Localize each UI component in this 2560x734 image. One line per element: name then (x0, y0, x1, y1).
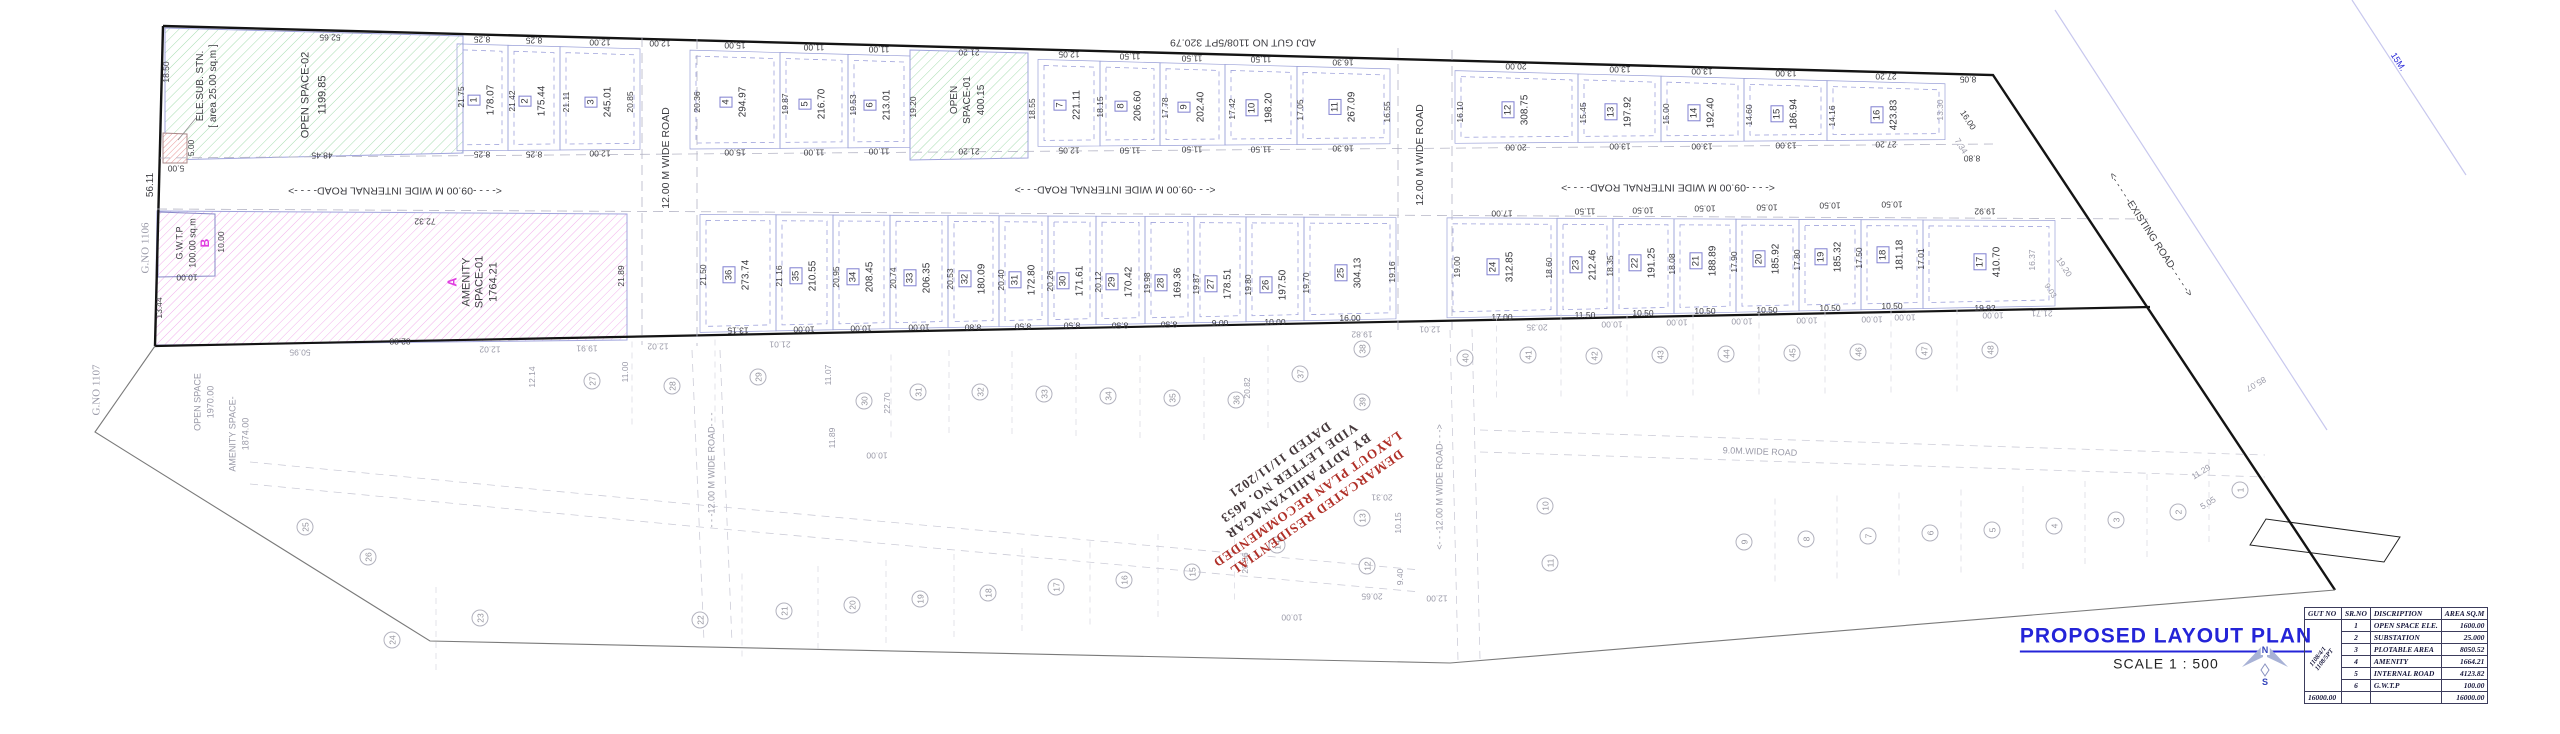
dim-label: 10.50 (1694, 204, 1715, 213)
dim-label: 20.40 (997, 269, 1006, 290)
table-header: AREA SQ.M (2441, 608, 2488, 620)
plot-area: 171.61 (1075, 266, 1086, 297)
dim-label: 13.00 (1609, 65, 1630, 74)
plot-number: 15 (1770, 106, 1783, 123)
dim-label: 10.50 (1632, 309, 1653, 318)
table-cell-sr_no: 2 (2342, 632, 2371, 644)
dim-label: 27.20 (1875, 72, 1896, 81)
plot-number: 1 (467, 94, 480, 105)
table-cell-area: 8050.52 (2441, 644, 2488, 656)
plot-cell (776, 215, 833, 331)
dim-label: 19.53 (849, 94, 858, 115)
plot-marker: 16 (1116, 572, 1133, 589)
dim-label: 13.00 (1775, 69, 1796, 78)
plot-number: 22 (1628, 255, 1641, 272)
dim-label: 11.50 (1575, 207, 1596, 216)
plot-cell (700, 214, 776, 332)
dim-label: 21.20 (958, 48, 979, 57)
road-label: <- - -12.00 M WIDE ROAD- - -> (1436, 424, 1445, 550)
dim-label: 21.75 (457, 86, 466, 107)
table-total-row: 16000.0016000.00 (2305, 692, 2488, 704)
plot-marker: 32 (972, 384, 989, 401)
plot-area: 172.80 (1026, 265, 1037, 296)
plot-marker: 26 (360, 549, 377, 566)
plot-number: 21 (1690, 253, 1703, 270)
dim-label: 11.00 (804, 148, 825, 157)
plot-cell-inner (1805, 225, 1855, 305)
dim-label: 72.32 (414, 217, 435, 226)
plot-marker: 37 (1292, 366, 1309, 383)
dim-label: 13.15 (727, 326, 748, 335)
boundary-line (1480, 452, 2265, 477)
plot-area: 175.44 (537, 86, 548, 117)
zone-label: AMENITY SPACE- (229, 396, 238, 471)
plot-number: 12 (1501, 102, 1514, 119)
plot-number: 36 (723, 267, 736, 284)
plot-marker: 42 (1586, 348, 1603, 365)
table-empty-cell (2370, 692, 2441, 704)
plot-area: 267.09 (1346, 92, 1357, 123)
table-cell-area: 25.000 (2441, 632, 2488, 644)
plot-area: 221.11 (1072, 90, 1083, 120)
table-cell-sr_no: 5 (2342, 668, 2371, 680)
dim-label: 10.00 (850, 324, 871, 333)
plot-number: 11 (1328, 99, 1341, 115)
dim-label: 20.82 (1243, 377, 1252, 398)
dim-label: 8.50 (1112, 321, 1129, 330)
table-header: SR.NO (2342, 608, 2371, 620)
plot-area: 210.55 (807, 261, 818, 292)
plot-cell-inner (1200, 223, 1240, 317)
plot-area: 245.01 (603, 87, 614, 118)
dim-label: 10.00 (1894, 313, 1915, 322)
plot-cell (1297, 66, 1390, 144)
dim-label: 20.53 (946, 268, 955, 289)
plot-area: 169.36 (1172, 268, 1183, 299)
plot-marker: 29 (750, 369, 767, 386)
plot-marker: 27 (584, 373, 601, 390)
dim-label: 11.00 (621, 362, 630, 383)
plot-number: 28 (1154, 275, 1167, 292)
plot-marker: 24 (384, 632, 401, 649)
plot-area: 192.40 (1705, 98, 1716, 129)
area-summary-table: GUT NOSR.NODISCRIPTIONAREA SQ.M1108/4/11… (2304, 607, 2488, 704)
table-cell-description: AMENITY (2370, 656, 2441, 668)
plot-cell (1160, 63, 1225, 146)
dim-label: 13.44 (155, 297, 164, 318)
plot-marker: 17 (1048, 579, 1065, 596)
plot-area: 181.18 (1895, 240, 1906, 271)
plot-cell (1145, 216, 1194, 323)
plot-marker: 21 (776, 603, 793, 620)
plot-number: 32 (958, 271, 971, 288)
dim-label: 10.50 (1881, 200, 1902, 209)
dim-label: 10.50 (1632, 206, 1653, 215)
dim-label: 14.16 (1828, 105, 1837, 126)
dim-label: 8.80 (1964, 154, 1981, 163)
dim-label: 10.00 (1281, 613, 1302, 622)
dim-label: 13.00 (1775, 141, 1796, 150)
dim-label: 12.00 (649, 39, 670, 48)
dim-label: 10.00 (217, 231, 226, 252)
boundary-line (2055, 10, 2327, 430)
dim-label: 19.82 (1351, 330, 1372, 339)
plot-cell (780, 53, 848, 149)
zone-label: SPACE-01 (475, 256, 486, 308)
zone-label: G.NO 1107 (92, 365, 103, 416)
dim-label: 20.85 (626, 91, 635, 112)
plot-cell-inner (1584, 80, 1655, 136)
dim-label: 1764.21 (489, 262, 500, 302)
zone-outline (2250, 519, 2400, 562)
dim-label: 52.65 (319, 33, 340, 42)
plot-area: 197.92 (1622, 97, 1633, 128)
dim-label: 16.30 (1332, 58, 1353, 67)
dim-label: 15.00 (724, 41, 745, 50)
dim-label: 11.50 (1251, 145, 1272, 154)
dim-label: 11.07 (824, 365, 833, 386)
dim-label: 400.15 (977, 85, 987, 116)
plot-marker: 47 (1916, 343, 1933, 360)
dim-label: 10.00 (793, 325, 814, 334)
dim-label: 21.16 (775, 265, 784, 286)
dim-label: 17.01 (1917, 248, 1926, 269)
dim-label: 11.00 (869, 147, 890, 156)
dim-label: 20.35 (1526, 323, 1547, 332)
plot-number: 4 (720, 96, 733, 107)
plot-cell (1048, 216, 1096, 326)
dim-label: 12.05 (1058, 146, 1079, 155)
plot-marker: 30 (856, 393, 873, 410)
plot-marker: 25 (297, 519, 314, 536)
plot-number: 19 (1815, 249, 1828, 266)
zone-outline (163, 133, 187, 163)
table-cell-sr_no: 1 (2342, 620, 2371, 632)
dim-label: 18.55 (1028, 98, 1037, 119)
dim-label: 20.26 (1046, 270, 1055, 291)
plot-number: 3 (585, 96, 598, 107)
plot-marker: 34 (1100, 388, 1117, 405)
dim-label: 17.42 (1228, 98, 1237, 119)
plot-number: 29 (1105, 274, 1118, 291)
zone-label: 100.00 sq.m (189, 218, 198, 268)
zone-label: OPEN SPACE (194, 373, 203, 431)
dim-label: 10.50 (1694, 307, 1715, 316)
zone-label: OPEN SPACE-02 (301, 52, 312, 139)
dim-label: 18.50 (162, 61, 171, 82)
plot-cell-inner (1461, 77, 1572, 138)
dim-label: 11.00 (804, 43, 825, 52)
dim-label: 13.00 (1691, 142, 1712, 151)
plot-cell (1304, 217, 1396, 320)
table-cell-area: 1664.21 (2441, 656, 2488, 668)
table-cell-description: INTERNAL ROAD (2370, 668, 2441, 680)
gut-no-value: 1108/4/11108/5PT (2308, 639, 2338, 671)
dim-label: 50.95 (289, 348, 310, 357)
plot-number: 5 (799, 98, 812, 109)
table-header: DISCRIPTION (2370, 608, 2441, 620)
dim-label: 8.50 (1064, 321, 1081, 330)
layout-plan-canvas: ADJ GUT NO 1108/5PT 320.79G.NO 110656.11… (0, 0, 2560, 734)
zone-label: G.NO 1106 (141, 223, 152, 274)
dim-label: 21.01 (769, 340, 790, 349)
dim-label: 11.50 (1251, 55, 1272, 64)
plot-cell (890, 215, 948, 328)
table-header: GUT NO (2305, 608, 2342, 620)
plot-number: 26 (1260, 277, 1273, 294)
dim-label: 16.30 (1332, 144, 1353, 153)
table-cell-sr_no: 4 (2342, 656, 2371, 668)
dim-label: 10.00 (908, 323, 929, 332)
dim-label: 21.42 (508, 90, 517, 111)
dim-label: 18.08 (1668, 253, 1677, 274)
plot-area: 185.32 (1833, 242, 1844, 273)
compass-north-label: N (2261, 645, 2270, 655)
plot-marker: 18 (980, 585, 997, 602)
dim-label: 10.50 (1819, 201, 1840, 210)
plan-scale: SCALE 1 : 500 (2020, 656, 2312, 672)
plot-marker: 15 (1184, 564, 1201, 581)
dim-label: 8.80 (965, 323, 982, 332)
dim-label: 10.00 (1796, 316, 1817, 325)
plot-marker: 40 (1457, 350, 1474, 367)
dim-label: 17.00 (1491, 209, 1512, 218)
dim-label: 21.11 (562, 92, 571, 113)
plot-marker: 19 (912, 591, 929, 608)
dim-label: 15.00 (1662, 103, 1671, 124)
dim-label: 10.15 (1394, 512, 1403, 533)
plot-area: 188.89 (1708, 246, 1719, 277)
zone-label: AMENITY (462, 258, 473, 307)
dim-label: 21.50 (699, 264, 708, 285)
plot-cell-inner (706, 220, 770, 326)
plot-area: 304.13 (1353, 258, 1364, 289)
dim-label: 5.00 (187, 140, 196, 157)
plot-marker: 28 (664, 378, 681, 395)
plot-cell (1674, 219, 1736, 314)
plot-area: 178.51 (1223, 269, 1234, 300)
zone-label: A (446, 277, 459, 286)
dim-label: 19.98 (1143, 272, 1152, 293)
dim-label: 19.16 (1388, 261, 1397, 282)
dim-label: 8.25 (526, 36, 543, 45)
plot-cell (1736, 219, 1799, 312)
zone-label: ELE.SUB. STN. (196, 51, 206, 122)
dim-label: 17.00 (1491, 313, 1512, 322)
plot-cell (1661, 76, 1744, 142)
plot-marker: 38 (1354, 341, 1371, 358)
plot-area: 312.85 (1505, 252, 1516, 283)
dim-label: 12.01 (1419, 325, 1440, 334)
dim-label: 10.00 (1666, 318, 1687, 327)
plot-cell-inner (1252, 223, 1298, 316)
plot-number: 6 (864, 99, 877, 110)
dim-label: 10.50 (1819, 304, 1840, 313)
boundary-line (1472, 329, 1480, 659)
plot-number: 27 (1205, 276, 1218, 293)
dim-label: 16.00 (1339, 314, 1360, 323)
plot-marker: 6 (1922, 525, 1939, 542)
dim-label: 18.35 (1606, 255, 1615, 276)
plot-cell (1861, 220, 1923, 310)
dim-label: 10.50 (1756, 306, 1777, 315)
dim-label: 17.80 (1793, 249, 1802, 270)
plot-marker: 45 (1784, 345, 1801, 362)
plot-number: 31 (1008, 272, 1021, 289)
plot-marker: 9 (1736, 534, 1753, 551)
dim-label: 20.65 (1361, 592, 1382, 601)
dim-label: 20.00 (1505, 143, 1526, 152)
dim-label: 56.11 (146, 173, 156, 197)
dim-label: 8.25 (474, 35, 491, 44)
dim-label: 22.70 (883, 392, 892, 413)
plot-marker: 43 (1652, 347, 1669, 364)
plot-cell-inner (1619, 225, 1668, 309)
dim-label: 10.50 (1756, 203, 1777, 212)
dim-label: 21.71 (2031, 309, 2052, 318)
plot-cell (1096, 216, 1145, 324)
dim-label: 1970.00 (207, 386, 216, 419)
dim-label: 8.05 (1960, 75, 1977, 84)
road-label: <- - - -09.00 M WIDE INTERNAL ROAD- - - … (288, 185, 502, 196)
plot-area: 308.75 (1519, 95, 1530, 126)
table-cell-description: OPEN SPACE ELE. (2370, 620, 2441, 632)
plot-number: 9 (1177, 101, 1190, 112)
dim-label: 10.00 (1982, 311, 2003, 320)
dim-label: 1874.00 (242, 418, 251, 451)
dim-label: 12.00 (589, 38, 610, 47)
boundary-line (2352, 0, 2466, 175)
road-label: 12.00 M WIDE ROAD (661, 107, 672, 209)
plot-number: 16 (1871, 107, 1884, 124)
zone-label: [ area 25.00 sq.m ] (209, 44, 219, 127)
plot-marker: 44 (1718, 346, 1735, 363)
plot-number: 24 (1487, 259, 1500, 276)
dim-label: 13.30 (1936, 99, 1945, 120)
dim-label: 10.00 (1264, 318, 1285, 327)
plot-area: 423.83 (1889, 100, 1900, 131)
plot-area: 206.60 (1133, 91, 1144, 122)
zone-label: SPACE-01 (963, 76, 973, 124)
plot-cell-inner (1680, 225, 1730, 308)
table-total-cell: 16000.00 (2305, 692, 2342, 704)
dim-label: 10.00 (1601, 320, 1622, 329)
road-label: - - -12.00 M WIDE ROAD- - - (708, 412, 717, 527)
plot-cell (1194, 217, 1246, 323)
plot-cell-inner (696, 56, 774, 143)
plot-cell-inner (1833, 87, 1939, 135)
table-cell-sr_no: 3 (2342, 644, 2371, 656)
plot-area: 208.45 (864, 262, 875, 293)
dim-label: 12.02 (647, 342, 668, 351)
plot-marker: 33 (1036, 386, 1053, 403)
plot-cell (1246, 217, 1304, 322)
dim-label: 12.00 (589, 149, 610, 158)
dim-label: 12.05 (1058, 50, 1079, 59)
dim-label: 11.00 (869, 45, 890, 54)
plot-cell (1100, 61, 1160, 146)
table-cell-description: G.W.T.P (2370, 680, 2441, 692)
plot-area: 185.92 (1770, 244, 1781, 275)
dim-label: 17.50 (1855, 247, 1864, 268)
dim-label: 13.00 (1609, 142, 1630, 151)
boundary-line (692, 350, 704, 642)
table-cell-area: 4123.82 (2441, 668, 2488, 680)
plot-marker: 31 (910, 384, 927, 401)
plot-cell-inner (1044, 65, 1094, 140)
dim-label: 16.55 (1383, 101, 1392, 122)
zone-outline (155, 211, 627, 345)
table-cell-sr_no: 6 (2342, 680, 2371, 692)
plot-marker: 8 (1798, 531, 1815, 548)
dim-label: 8.50 (1015, 322, 1032, 331)
dim-label: 18.60 (1545, 257, 1554, 278)
dim-label: 11.50 (1182, 145, 1203, 154)
dim-label: 15.45 (1579, 102, 1588, 123)
plot-marker: 13 (1354, 510, 1371, 527)
dim-label: 10.50 (1881, 302, 1902, 311)
plot-area: 198.20 (1264, 93, 1275, 124)
plot-area: 294.97 (738, 87, 749, 118)
plot-marker: 22 (692, 612, 709, 629)
plot-marker: 20 (844, 597, 861, 614)
table-row: 1108/4/11108/5PT1OPEN SPACE ELE.1600.00 (2305, 620, 2488, 632)
plot-number: 7 (1054, 99, 1067, 110)
plot-cell-inner (1310, 223, 1390, 314)
plot-marker: 23 (472, 610, 489, 627)
dim-label: 20.74 (889, 267, 898, 288)
plot-cell (690, 50, 780, 149)
dim-label: 17.78 (1161, 97, 1170, 118)
table-cell-area: 100.00 (2441, 680, 2488, 692)
plot-area: 213.01 (882, 90, 893, 121)
plot-cell (1799, 219, 1861, 311)
plot-area: 197.50 (1278, 270, 1289, 301)
plot-cell-inner (1303, 72, 1384, 138)
plot-marker: 12 (1359, 558, 1376, 575)
plot-cell (833, 215, 890, 330)
plot-cell-inner (1453, 224, 1551, 312)
dim-label: 20.95 (832, 266, 841, 287)
zone-label: OPEN (950, 86, 960, 114)
plot-marker: 46 (1850, 344, 1867, 361)
dim-label: 19.70 (1302, 272, 1311, 293)
dim-label: 21.20 (958, 147, 979, 156)
dim-label: 8.50 (1161, 320, 1178, 329)
plot-marker: 48 (1982, 342, 1999, 359)
dim-label: 20.31 (1371, 493, 1392, 502)
plot-cell-inner (786, 59, 842, 143)
zone-label: G.W.T.P (176, 226, 185, 259)
plot-cell-inner (1867, 226, 1917, 304)
dim-label: 11.50 (1575, 311, 1596, 320)
dim-label: 20.00 (1505, 62, 1526, 71)
plot-cell (1578, 74, 1661, 142)
dim-label: 19.87 (781, 93, 790, 114)
plot-number: 33 (904, 270, 917, 287)
dim-label: 16.10 (1456, 101, 1465, 122)
table-empty-cell (2342, 692, 2371, 704)
plot-cell (1038, 59, 1100, 146)
dim-label: 15.00 (724, 148, 745, 157)
dim-label: 82.88 (389, 337, 410, 346)
plot-marker: 2 (2170, 504, 2187, 521)
dim-label: 11.89 (828, 428, 837, 449)
plot-number: 8 (1115, 100, 1128, 111)
dim-label: 9.40 (1396, 569, 1405, 586)
plot-number: 18 (1877, 247, 1890, 264)
table-cell-description: PLOTABLE AREA (2370, 644, 2441, 656)
